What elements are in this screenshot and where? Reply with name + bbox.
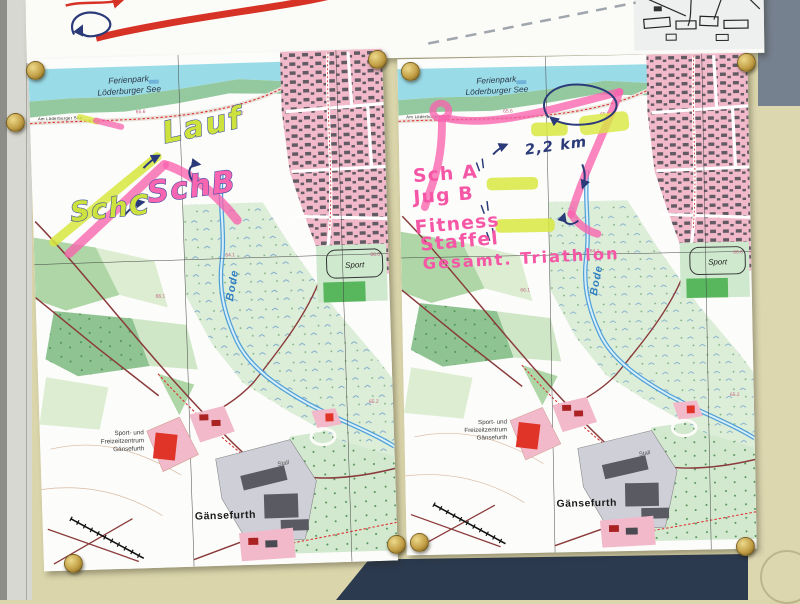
elevation-65-2: 65.2	[369, 399, 379, 405]
town-label: Gänsefurth	[195, 509, 256, 523]
push-pin	[6, 113, 25, 132]
elevation-64-1: 64.1	[225, 252, 235, 258]
push-pin	[737, 53, 756, 72]
photo-of-pinned-maps: { "wall": { "base_color": "#dbd5ab", "le…	[0, 0, 800, 600]
elevation-66-0: 66.0	[370, 252, 380, 258]
handwritten-jug-b: Jug B	[411, 183, 475, 208]
push-pin	[401, 62, 420, 81]
push-pin	[64, 554, 83, 573]
freizeitzentrum-line3: Gänsefurth	[113, 445, 145, 453]
push-pin	[410, 533, 429, 552]
yellow-bar-2	[487, 177, 539, 191]
freizeitzentrum-line1: Sport- und	[114, 429, 144, 437]
elevation-65-6: 65.6	[136, 109, 146, 115]
push-pin	[26, 61, 45, 80]
wall-slate-panel	[758, 0, 800, 106]
yellow-bar-1	[531, 122, 568, 136]
push-pin	[736, 537, 755, 556]
wall-left-edge	[0, 0, 7, 600]
right-map-sheet: Sch A Jug B Fitness Staffel Gesamt. Tria…	[397, 53, 756, 556]
yellow-bar-3	[495, 218, 555, 233]
freizeitzentrum-line2: Freizeitzentrum	[101, 437, 145, 445]
wall-left-seam	[26, 0, 27, 600]
push-pin	[368, 50, 387, 69]
sport-label: Sport	[345, 260, 365, 270]
elevation-66-1: 66.1	[155, 293, 165, 299]
upper-buildings-sketch	[634, 0, 765, 51]
upper-route-marks	[65, 0, 636, 49]
push-pin	[387, 535, 406, 554]
left-map-sheet: Ferienpark Löderburger See Am Löderburge…	[28, 49, 398, 572]
wall-navy-panel	[336, 554, 748, 600]
